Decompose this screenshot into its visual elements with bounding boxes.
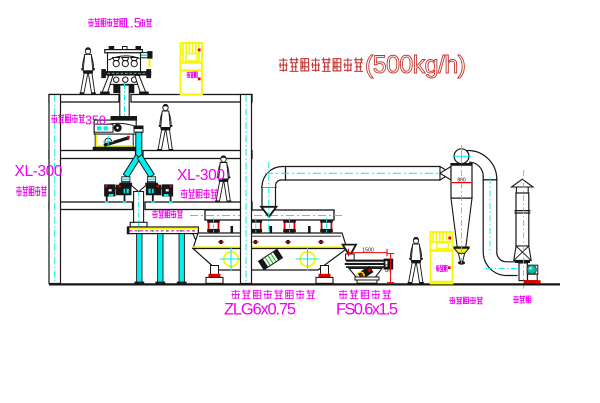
svg-text:(500kg/h): (500kg/h) [365,51,466,79]
svg-text:XL-300: XL-300 [177,167,225,184]
svg-text:350: 350 [85,114,106,128]
svg-text:540: 540 [385,264,391,273]
svg-text:ZLG6x0.75: ZLG6x0.75 [224,301,296,319]
svg-text:1500: 1500 [362,248,374,254]
svg-text:FS0.6x1.5: FS0.6x1.5 [336,301,398,319]
svg-text:XL-300: XL-300 [15,163,63,180]
svg-text:1.5: 1.5 [123,16,142,31]
